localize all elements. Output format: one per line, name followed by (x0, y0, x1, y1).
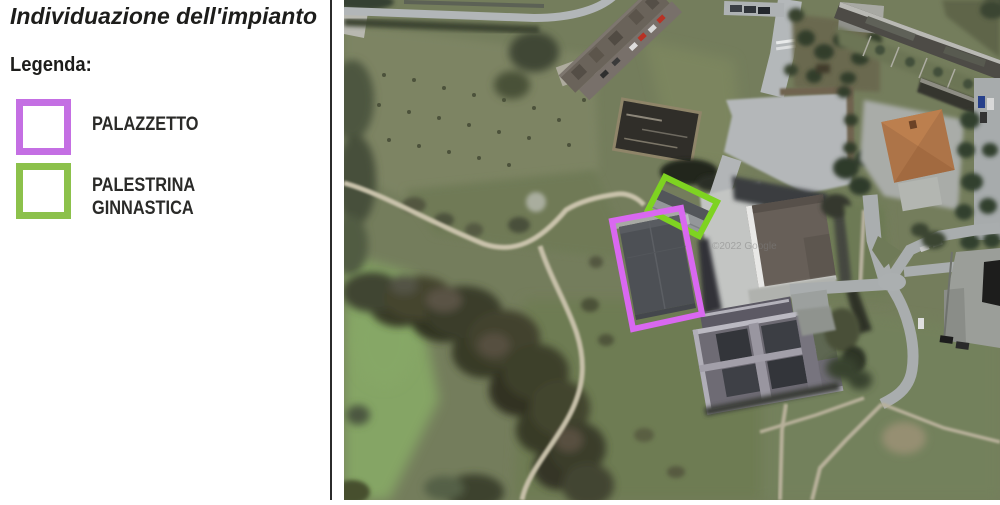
svg-text:©2022 Google: ©2022 Google (712, 241, 777, 252)
